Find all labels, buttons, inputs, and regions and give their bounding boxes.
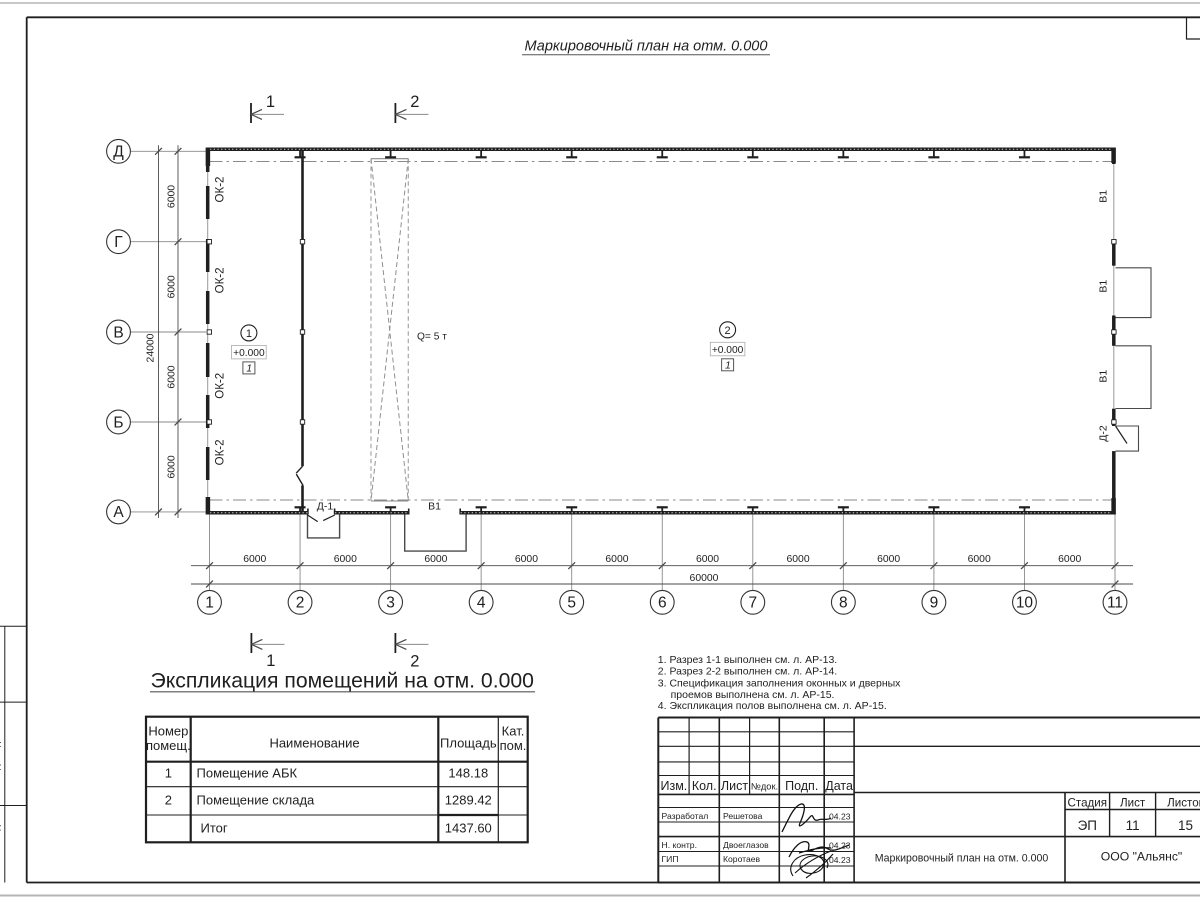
svg-text:Площадь: Площадь — [440, 736, 497, 751]
svg-text:Подп.: Подп. — [785, 779, 818, 793]
svg-text:Решетова: Решетова — [723, 811, 763, 821]
svg-text:Изм.: Изм. — [661, 779, 688, 793]
svg-text:А: А — [113, 504, 124, 521]
svg-text:ОК-2: ОК-2 — [214, 439, 226, 465]
svg-text:Г: Г — [114, 234, 123, 251]
svg-text:6000: 6000 — [424, 554, 447, 565]
svg-text:ОК-2: ОК-2 — [214, 373, 226, 399]
svg-text:1437.60: 1437.60 — [445, 820, 492, 835]
svg-text:3. Спецификация заполнения око: 3. Спецификация заполнения оконных и две… — [658, 677, 901, 689]
svg-text:Наименование: Наименование — [269, 736, 359, 751]
svg-text:6000: 6000 — [696, 554, 719, 565]
svg-text:Кат.: Кат. — [502, 724, 525, 739]
svg-text:1: 1 — [246, 328, 252, 340]
svg-text:6000: 6000 — [1058, 554, 1081, 565]
svg-text:1. Разрез 1-1 выполнен см. л.: 1. Разрез 1-1 выполнен см. л. АР-13. — [658, 654, 837, 666]
svg-text:7: 7 — [748, 595, 757, 612]
svg-text:10: 10 — [1016, 595, 1034, 612]
svg-text:Q= 5 т: Q= 5 т — [417, 332, 447, 343]
svg-text:Д-2: Д-2 — [1098, 425, 1110, 442]
svg-text:6000: 6000 — [515, 554, 538, 565]
svg-text:11: 11 — [1107, 595, 1123, 612]
svg-text:1: 1 — [725, 360, 731, 372]
svg-text:Дата: Дата — [825, 779, 853, 793]
svg-text:3: 3 — [386, 595, 395, 612]
svg-text:Номер: Номер — [148, 724, 188, 739]
svg-text:2: 2 — [410, 93, 419, 111]
svg-text:Подп. и дата: Подп. и дата — [0, 728, 1, 781]
svg-text:4: 4 — [477, 595, 486, 612]
svg-text:В1: В1 — [1098, 280, 1110, 293]
svg-text:Лист: Лист — [721, 779, 748, 793]
svg-text:4. Экспликация полов выполнена: 4. Экспликация полов выполнена см. л. АР… — [658, 700, 887, 712]
svg-text:6000: 6000 — [787, 554, 810, 565]
svg-text:пом.: пом. — [500, 738, 527, 753]
svg-text:Д-1: Д-1 — [317, 500, 334, 512]
svg-text:ООО "Альянс": ООО "Альянс" — [1101, 850, 1183, 864]
svg-text:1: 1 — [165, 766, 172, 781]
svg-text:Инв. № подл.: Инв. № подл. — [0, 817, 1, 873]
svg-text:9: 9 — [930, 595, 939, 612]
svg-text:60000: 60000 — [690, 573, 719, 584]
svg-text:Листов: Листов — [1167, 796, 1200, 809]
svg-text:Двоеглазов: Двоеглазов — [723, 840, 769, 850]
svg-text:ГИП: ГИП — [662, 854, 679, 864]
svg-text:Итог: Итог — [201, 820, 228, 835]
svg-text:помещ.: помещ. — [146, 738, 191, 753]
svg-text:6000: 6000 — [968, 554, 991, 565]
svg-text:В1: В1 — [1098, 190, 1110, 203]
svg-text:Б: Б — [113, 414, 123, 431]
svg-text:Экспликация помещений на отм.: Экспликация помещений на отм. 0.000 — [151, 669, 534, 692]
svg-text:1: 1 — [246, 363, 252, 375]
svg-text:Разработал: Разработал — [662, 811, 709, 821]
svg-text:+0.000: +0.000 — [712, 345, 744, 356]
svg-text:11: 11 — [1126, 818, 1140, 833]
svg-text:04.23: 04.23 — [829, 855, 851, 865]
svg-text:2: 2 — [410, 653, 419, 671]
svg-text:6000: 6000 — [167, 185, 178, 208]
svg-text:Н. контр.: Н. контр. — [662, 840, 697, 850]
svg-text:Маркировочный план на отм. 0.0: Маркировочный план на отм. 0.000 — [875, 853, 1049, 865]
svg-text:6: 6 — [658, 595, 667, 612]
svg-text:Кол.: Кол. — [692, 779, 717, 793]
svg-text:24000: 24000 — [146, 333, 157, 362]
svg-text:6000: 6000 — [334, 554, 357, 565]
svg-text:ОК-2: ОК-2 — [214, 267, 226, 293]
svg-text:2: 2 — [165, 792, 172, 807]
svg-text:15: 15 — [1178, 818, 1193, 833]
svg-text:8: 8 — [839, 595, 848, 612]
svg-text:Лист: Лист — [1120, 796, 1146, 809]
svg-text:2: 2 — [725, 325, 731, 337]
svg-text:2. Разрез 2-2 выполнен см. л.: 2. Разрез 2-2 выполнен см. л. АР-14. — [658, 666, 837, 678]
svg-text:6000: 6000 — [167, 275, 178, 298]
svg-text:№док.: №док. — [751, 781, 778, 791]
svg-text:В1: В1 — [1098, 370, 1110, 383]
svg-text:В: В — [113, 324, 123, 341]
svg-text:ОК-2: ОК-2 — [214, 177, 226, 203]
svg-text:+0.000: +0.000 — [233, 348, 265, 359]
svg-text:2: 2 — [296, 595, 305, 612]
svg-text:1289.42: 1289.42 — [445, 792, 492, 807]
svg-text:Д: Д — [113, 144, 124, 161]
svg-text:6000: 6000 — [167, 365, 178, 388]
svg-text:1: 1 — [205, 595, 214, 612]
svg-text:Маркировочный план на отм. 0.0: Маркировочный план на отм. 0.000 — [525, 39, 768, 55]
svg-text:ЭП: ЭП — [1078, 818, 1097, 833]
svg-text:В1: В1 — [428, 500, 441, 512]
svg-text:6000: 6000 — [167, 455, 178, 478]
svg-text:1: 1 — [266, 93, 275, 111]
svg-text:6000: 6000 — [605, 554, 628, 565]
svg-text:5: 5 — [567, 595, 576, 612]
svg-text:6000: 6000 — [877, 554, 900, 565]
svg-text:Согласовано: Согласовано — [0, 638, 1, 692]
svg-text:04.23: 04.23 — [829, 812, 851, 822]
svg-text:148.18: 148.18 — [448, 766, 488, 781]
svg-text:Коротаев: Коротаев — [723, 854, 761, 864]
svg-text:1: 1 — [266, 652, 275, 670]
svg-text:Помещение АБК: Помещение АБК — [197, 766, 298, 781]
svg-text:Помещение склада: Помещение склада — [197, 792, 316, 807]
svg-text:6000: 6000 — [243, 554, 266, 565]
svg-text:Стадия: Стадия — [1068, 796, 1108, 809]
